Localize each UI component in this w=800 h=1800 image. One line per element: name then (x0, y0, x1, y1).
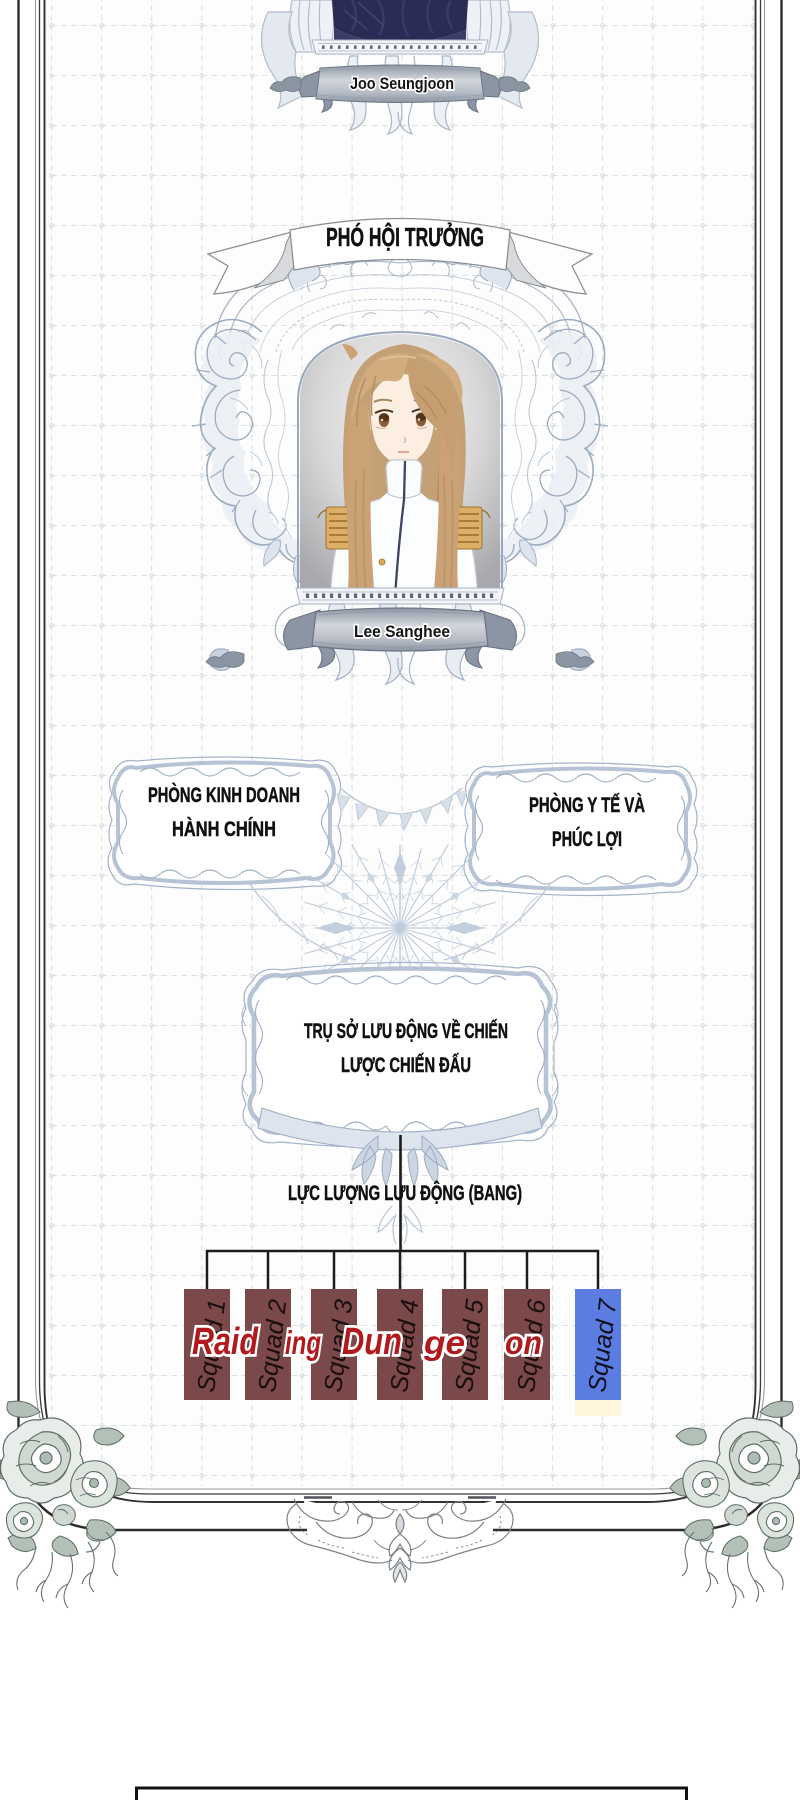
svg-text:LỰC LƯỢNG LƯU ĐỘNG (BANG): LỰC LƯỢNG LƯU ĐỘNG (BANG) (288, 1181, 522, 1205)
svg-text:TRỤ SỞ LƯU ĐỘNG VỀ CHIẾN: TRỤ SỞ LƯU ĐỘNG VỀ CHIẾN (304, 1019, 508, 1043)
svg-text:Joo Seungjoon: Joo Seungjoon (350, 74, 454, 93)
svg-text:on: on (505, 1324, 542, 1361)
svg-text:HÀNH CHÍNH: HÀNH CHÍNH (172, 818, 276, 841)
svg-text:Dun: Dun (342, 1321, 402, 1363)
svg-text:ge: ge (423, 1324, 465, 1361)
svg-text:ing: ing (285, 1324, 321, 1361)
svg-text:PHÒNG KINH DOANH: PHÒNG KINH DOANH (148, 783, 300, 807)
svg-text:Raid: Raid (192, 1321, 259, 1363)
svg-text:PHÓ HỘI TRƯỞNG: PHÓ HỘI TRƯỞNG (326, 221, 484, 252)
svg-text:LƯỢC CHIẾN ĐẤU: LƯỢC CHIẾN ĐẤU (341, 1054, 471, 1077)
svg-text:PHÚC LỢI: PHÚC LỢI (552, 827, 622, 851)
svg-text:Lee Sanghee: Lee Sanghee (354, 622, 450, 641)
svg-text:PHÒNG Y TẾ VÀ: PHÒNG Y TẾ VÀ (529, 793, 645, 817)
